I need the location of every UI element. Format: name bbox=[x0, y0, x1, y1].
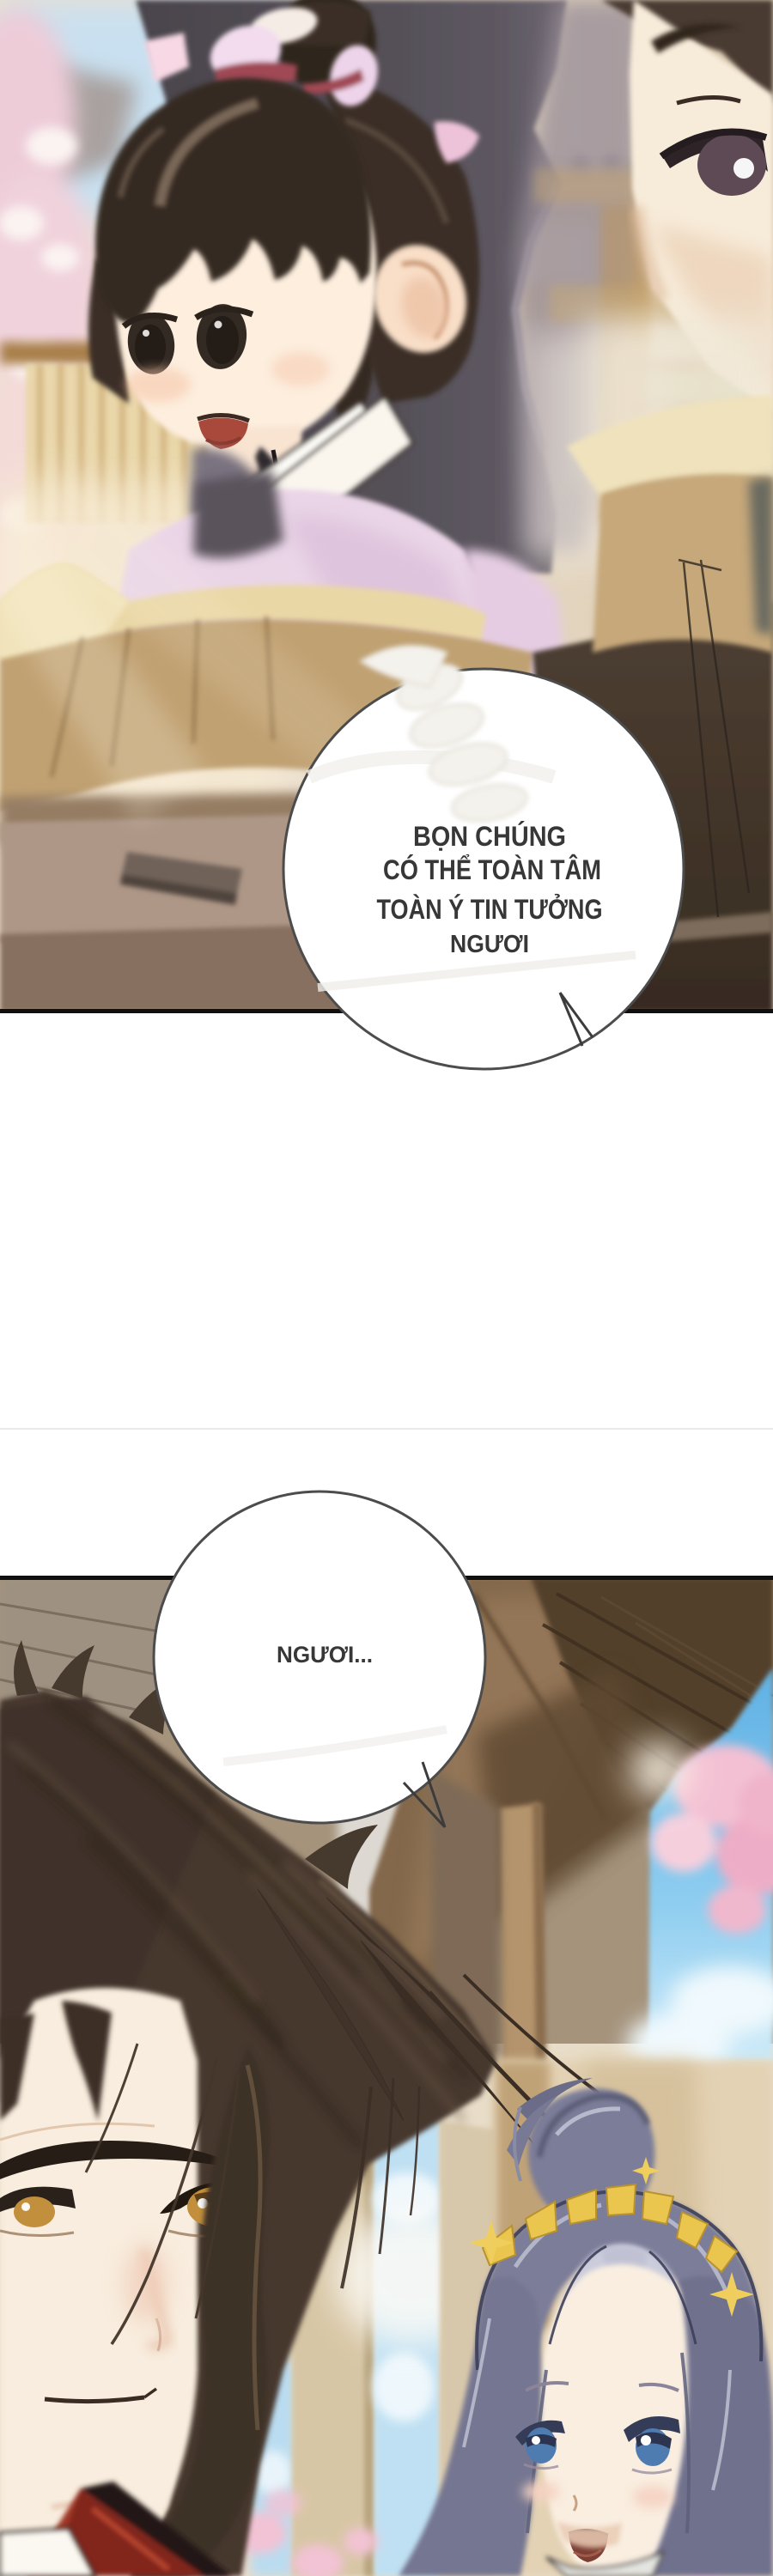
svg-text:CÓ THỂ TOÀN TÂM: CÓ THỂ TOÀN TÂM bbox=[383, 854, 601, 885]
svg-text:BỌN CHÚNG: BỌN CHÚNG bbox=[413, 821, 566, 852]
svg-text:NGƯƠI...: NGƯƠI... bbox=[277, 1642, 373, 1668]
svg-text:TOÀN Ý TIN TƯỞNG: TOÀN Ý TIN TƯỞNG bbox=[377, 894, 603, 925]
svg-text:NGƯƠI: NGƯƠI bbox=[450, 931, 529, 958]
